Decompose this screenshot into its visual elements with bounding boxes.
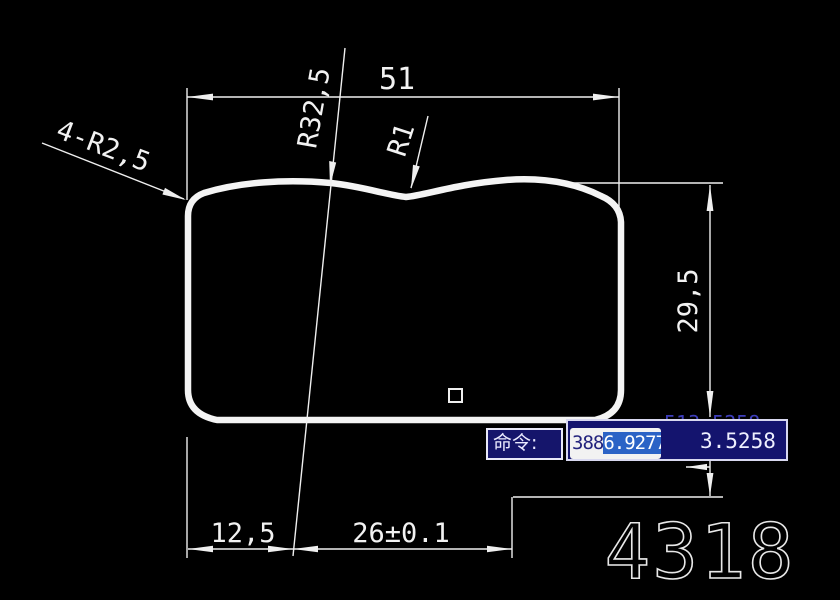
cad-application-window: 51 R32,5 R1 4-R2,5 29,5 xyxy=(0,0,840,600)
dim-text-51[interactable]: 51 xyxy=(379,62,415,97)
x-value-selected-text: 6.9277 xyxy=(603,432,661,454)
arrowhead-down xyxy=(707,473,714,496)
dim-corner-radii[interactable]: 4-R2,5 xyxy=(42,115,186,200)
profile-outline[interactable] xyxy=(188,179,621,420)
dim-text-12-5[interactable]: 12,5 xyxy=(210,518,275,549)
dim-text-r1[interactable]: R1 xyxy=(382,120,422,161)
arrowhead-mid-left xyxy=(293,546,318,553)
arrowhead xyxy=(162,188,186,200)
dim-text-r32-5[interactable]: R32,5 xyxy=(292,65,337,150)
arrowhead-left xyxy=(686,464,707,470)
arrowhead-up xyxy=(707,185,714,211)
arrowhead-right xyxy=(593,94,619,101)
dim-text-29-5[interactable]: 29,5 xyxy=(673,268,704,333)
dim-notch-radius[interactable]: R1 xyxy=(382,116,428,189)
arrowhead-left xyxy=(187,94,213,101)
command-prompt[interactable]: 命令: xyxy=(486,428,563,460)
dim-text-26-tol[interactable]: 26±0.1 xyxy=(352,518,450,549)
drawing-canvas[interactable]: 51 R32,5 R1 4-R2,5 29,5 xyxy=(0,0,840,600)
node-marker[interactable] xyxy=(449,389,462,402)
dim-lower-right[interactable] xyxy=(513,455,723,497)
dim-right-height[interactable]: 29,5 xyxy=(573,183,723,417)
x-value-prefix: 388 xyxy=(572,432,603,454)
dim-bottom-group[interactable]: 12,5 26±0.1 xyxy=(187,437,512,558)
dynamic-input-y-value: 3.5258 xyxy=(700,427,776,455)
dim-top-radius[interactable]: R32,5 xyxy=(292,48,345,556)
arrowhead-far-right xyxy=(487,546,512,553)
part-number-text[interactable]: 4318 xyxy=(604,507,795,596)
dim-text-4-r2-5[interactable]: 4-R2,5 xyxy=(52,115,154,179)
dynamic-input-x-field[interactable]: 3886.9277 xyxy=(570,428,661,459)
arrowhead-down xyxy=(411,165,420,189)
arrowhead-far-left xyxy=(188,546,213,553)
dynamic-input-tooltip: 3886.9277 3.5258 xyxy=(566,419,788,461)
